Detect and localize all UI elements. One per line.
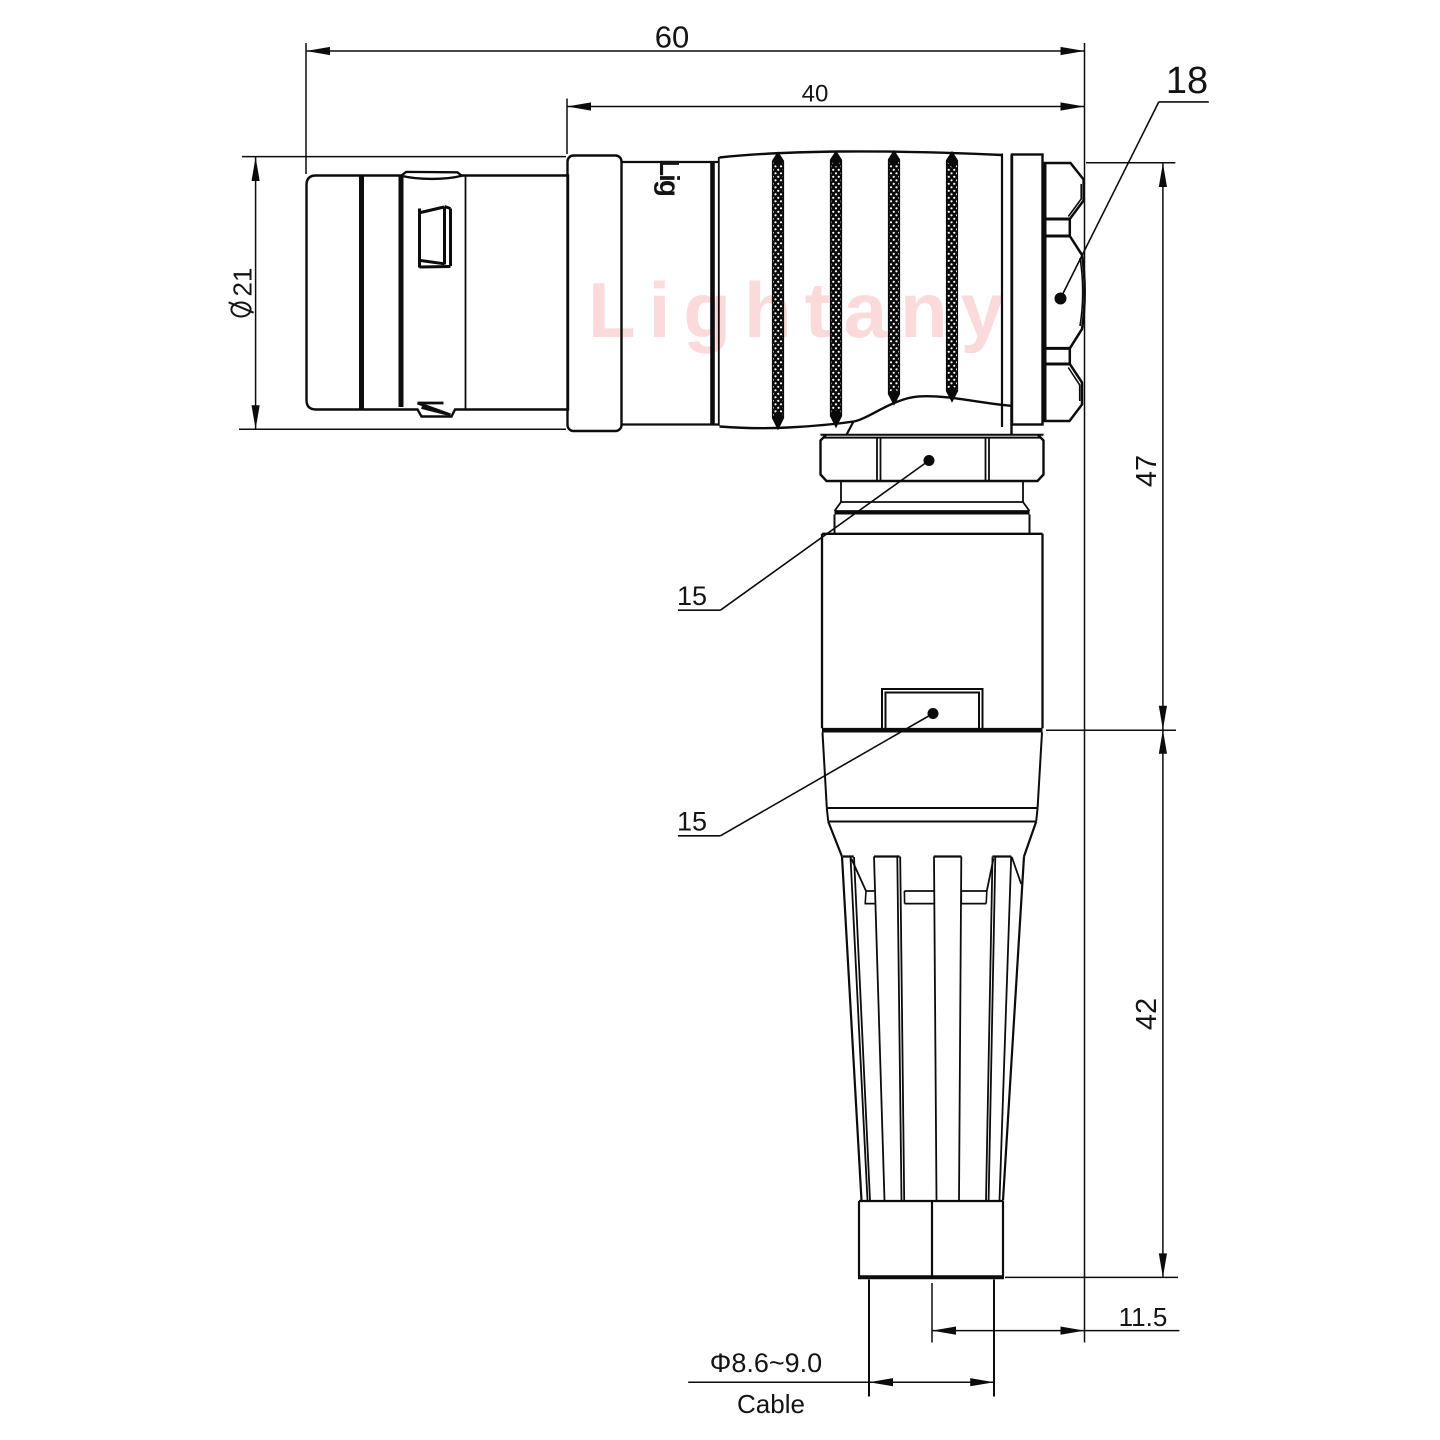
svg-text:Φ8.6~9.0: Φ8.6~9.0 xyxy=(710,1348,822,1378)
svg-text:42: 42 xyxy=(1131,998,1163,1030)
svg-text:40: 40 xyxy=(802,81,829,108)
svg-text:15: 15 xyxy=(677,807,707,837)
svg-text:Cable: Cable xyxy=(737,1389,805,1419)
svg-text:Lig: Lig xyxy=(654,159,685,196)
svg-text:47: 47 xyxy=(1131,455,1163,487)
svg-text:11.5: 11.5 xyxy=(1119,1302,1168,1332)
svg-text:21: 21 xyxy=(228,268,258,297)
svg-text:18: 18 xyxy=(1166,60,1208,102)
svg-text:60: 60 xyxy=(655,20,689,55)
svg-text:15: 15 xyxy=(677,581,707,611)
